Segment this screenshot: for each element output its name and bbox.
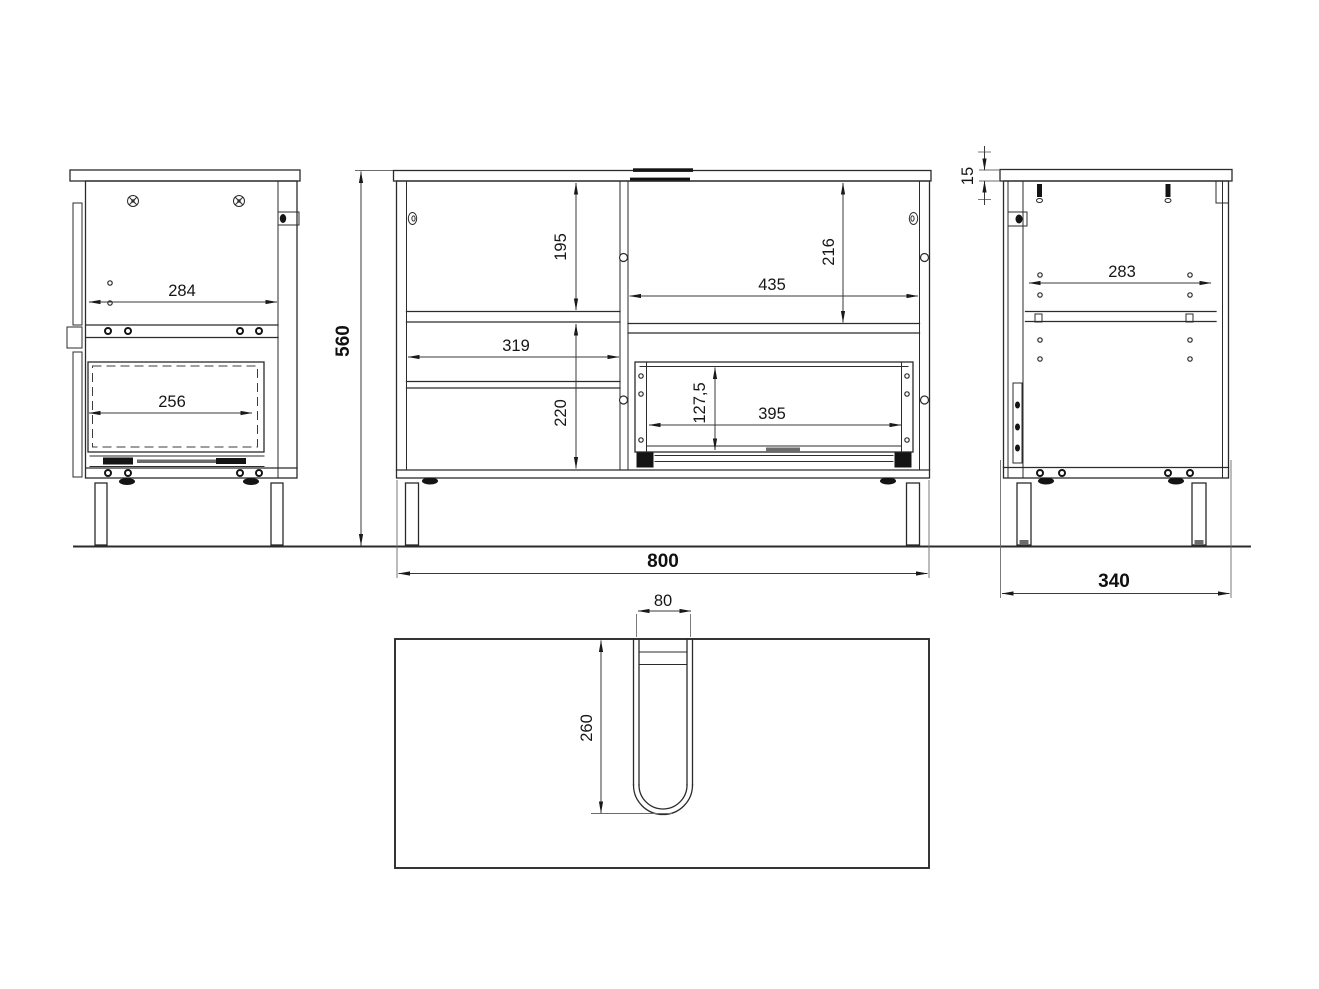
dimension-label-195: 195 — [552, 233, 570, 261]
dimension-label-260: 260 — [578, 714, 596, 742]
dimension-inner-width-283: 283 — [1029, 263, 1211, 283]
slide-bracket — [1013, 383, 1022, 463]
cam-screw-icon — [234, 196, 245, 207]
pin-hole — [1188, 293, 1192, 297]
countertop-panel — [1000, 170, 1232, 182]
right-rail — [628, 324, 920, 334]
pin-hole — [1188, 357, 1192, 361]
panel-outline — [395, 639, 929, 868]
left-lower-rail — [407, 382, 621, 389]
dimension-width-800: 800 — [397, 480, 929, 578]
dimension-label-395: 395 — [758, 405, 786, 423]
dimension-label-216: 216 — [820, 238, 838, 266]
bottom-panel — [1004, 468, 1229, 485]
dimension-depth-284: 284 — [89, 282, 277, 302]
technical-drawing-canvas: 284 256 560 — [0, 0, 1319, 989]
hinge-bracket — [1008, 212, 1027, 226]
pin-hole — [921, 254, 929, 262]
pin-hole — [1038, 293, 1042, 297]
dimension-drawer-depth-256: 256 — [89, 393, 252, 413]
leg — [271, 483, 283, 545]
cutout-edge-mark — [633, 168, 693, 172]
dimension-label-256: 256 — [158, 393, 186, 411]
dimension-label-80: 80 — [654, 592, 672, 610]
pin-hole — [1188, 338, 1192, 342]
center-divider — [620, 181, 628, 470]
bottom-view: 80 260 — [395, 592, 929, 868]
pin-hole — [1038, 357, 1042, 361]
leg — [907, 483, 920, 545]
hinge-cup-icon — [909, 213, 917, 225]
dimension-drawer-height-127-5: 127,5 — [691, 368, 715, 451]
door-front-strip-lower — [73, 352, 82, 477]
dimension-label-340: 340 — [1098, 571, 1130, 592]
mid-rail — [86, 325, 278, 338]
leg — [95, 483, 107, 545]
hinge-cup-icon — [408, 213, 416, 225]
leg-plate — [422, 478, 438, 485]
leg-foot — [1020, 540, 1029, 545]
dimension-label-284: 284 — [168, 282, 196, 300]
pin-hole — [108, 281, 112, 285]
dimension-bottom-left-220: 220 — [552, 324, 576, 469]
dimension-label-283: 283 — [1108, 263, 1136, 281]
leg — [406, 483, 419, 545]
mounting-bolt-icon — [1165, 184, 1171, 203]
door-front-strip-upper — [73, 203, 82, 325]
door-front-tab — [67, 327, 82, 348]
side-view-left: 284 256 — [67, 170, 300, 545]
pin-hole — [1038, 338, 1042, 342]
dimension-label-800: 800 — [647, 551, 679, 572]
dimension-right-top-216: 216 — [820, 183, 843, 323]
dimension-cutout-width-80: 80 — [637, 592, 692, 637]
drawer-slide-hardware — [637, 453, 912, 468]
shelf — [1026, 312, 1217, 323]
pin-hole — [620, 396, 628, 404]
dimension-label-220: 220 — [552, 399, 570, 427]
pin-hole — [921, 396, 929, 404]
dimension-label-435: 435 — [758, 276, 786, 294]
rear-bracket-top — [278, 212, 299, 225]
dimension-drawer-width-395: 395 — [649, 405, 901, 425]
dimension-depth-340: 340 — [1001, 460, 1232, 598]
cam-screw-icon — [128, 196, 139, 207]
drawer-slide-rail — [90, 456, 264, 467]
leg — [1192, 483, 1206, 545]
pin-hole — [1038, 273, 1042, 277]
cabinet-drawing: 284 256 560 — [0, 0, 1319, 989]
leg-plate — [880, 478, 896, 485]
bottom-panel — [86, 468, 297, 485]
dimension-label-560: 560 — [333, 325, 354, 357]
pin-hole — [1188, 273, 1192, 277]
mounting-bolt-icon — [1037, 184, 1043, 203]
carcass-outline — [86, 181, 298, 478]
dimension-cutout-depth-260: 260 — [578, 641, 672, 814]
countertop-panel — [70, 170, 300, 181]
dimension-top-left-195: 195 — [552, 183, 576, 310]
dimension-left-width-319: 319 — [408, 337, 619, 357]
side-view-right: 15 283 — [959, 146, 1232, 545]
front-view: 195 319 220 216 435 127,5 395 — [394, 168, 932, 545]
pin-hole — [620, 254, 628, 262]
dimension-label-319: 319 — [502, 337, 530, 355]
carcass-outline — [1004, 181, 1229, 478]
dimension-right-width-435: 435 — [630, 276, 919, 296]
left-shelf — [407, 312, 621, 323]
dimension-label-15: 15 — [959, 167, 977, 185]
siphon-cutout — [634, 639, 693, 815]
dimension-height-560: 560 — [333, 171, 393, 546]
carcass-outline — [397, 181, 930, 478]
dimension-label-127-5: 127,5 — [691, 382, 709, 423]
leg — [1017, 483, 1031, 545]
dimension-top-thickness-15: 15 — [959, 146, 1000, 205]
pin-hole — [108, 301, 112, 305]
leg-foot — [1195, 540, 1204, 545]
